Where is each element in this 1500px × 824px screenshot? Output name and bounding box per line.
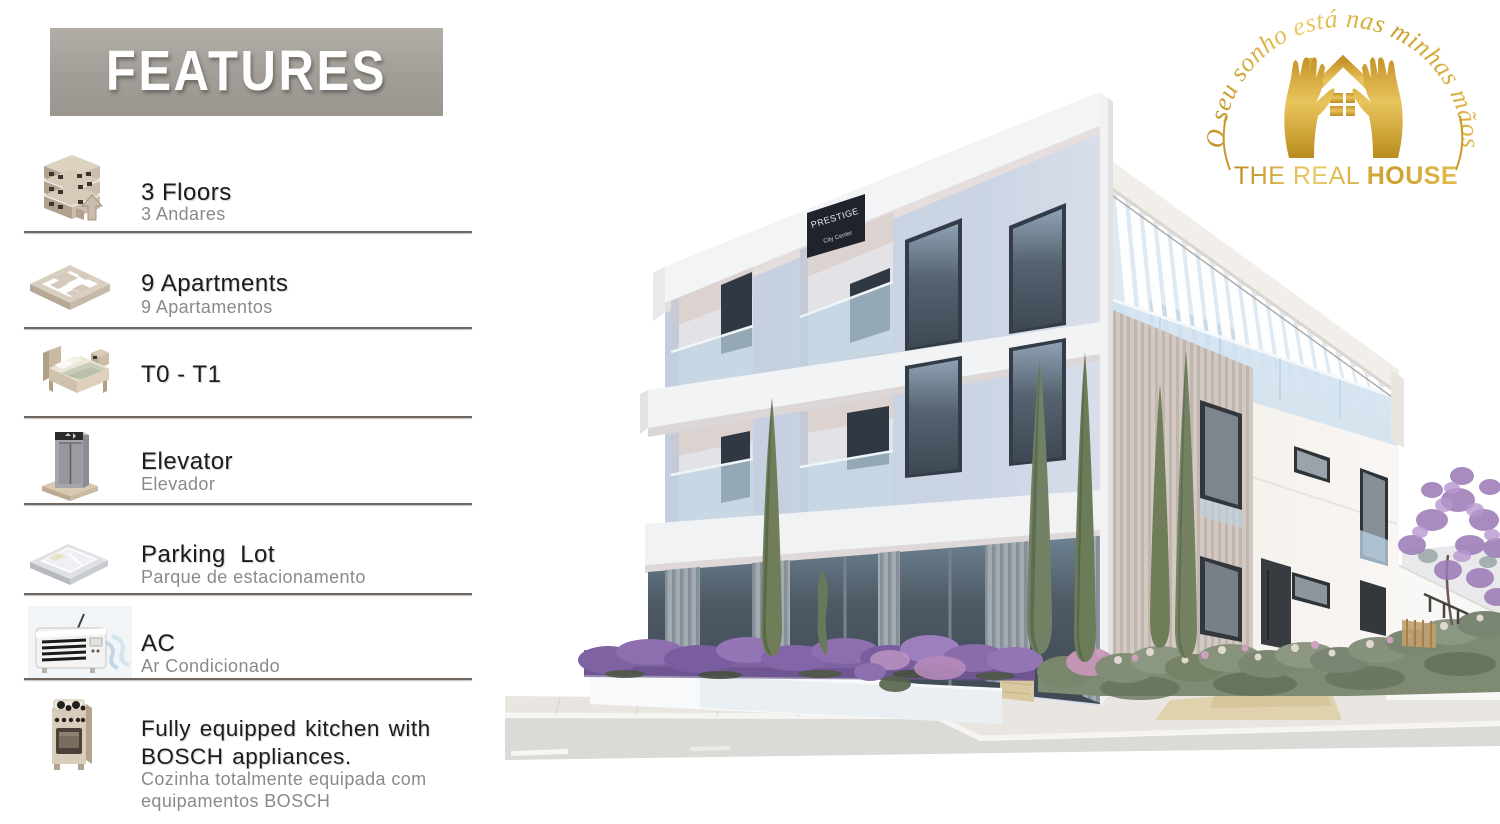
svg-text:THE REAL HOUSE: THE REAL HOUSE — [1234, 162, 1458, 190]
svg-text:O seu sonho está nas minhas mã: O seu sonho está nas minhas mãos — [1201, 4, 1485, 149]
